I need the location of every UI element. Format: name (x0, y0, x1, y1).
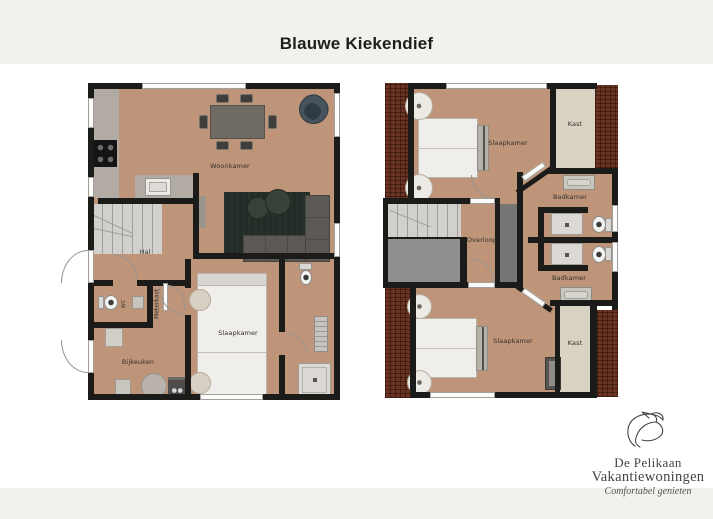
radiator (314, 316, 328, 352)
dining-chair (199, 115, 208, 129)
wall (408, 198, 470, 204)
closet-top (555, 88, 595, 168)
room-label-badkamer-bottom: Badkamer (552, 274, 586, 282)
wc-sink (132, 296, 144, 309)
bedside-stool (189, 372, 211, 394)
wall (538, 207, 588, 213)
wall (538, 265, 588, 271)
coffee-table (265, 189, 291, 215)
back-door (88, 340, 94, 373)
bedside-stool (189, 289, 211, 311)
bed-split-line (414, 348, 476, 349)
door-arc (61, 250, 88, 283)
wall (550, 300, 618, 306)
room-label-kast-bottom: Kast (568, 339, 582, 347)
toilet-tank (605, 218, 612, 232)
upper-floor-plan: Slaapkamer Kast Badkamer Overloop Badkam… (383, 83, 620, 400)
bed-headboard (198, 274, 266, 286)
wall (383, 282, 468, 288)
window (430, 392, 495, 398)
shaft (500, 204, 517, 282)
lounge-chair-seat (302, 100, 324, 122)
dining-table (210, 105, 265, 139)
room-label-wc: WC (121, 300, 127, 308)
wc-toilet (104, 295, 118, 310)
room-label-kast-top: Kast (568, 120, 582, 128)
wall (538, 243, 544, 271)
room-label-badkamer-top: Badkamer (553, 193, 587, 201)
toilet (592, 246, 606, 263)
room-label-slaapkamer-bottom: Slaapkamer (493, 337, 533, 345)
door-arc (61, 340, 88, 373)
logo-tagline: Comfortabel genieten (583, 485, 713, 498)
dining-chair (240, 141, 253, 150)
room-label-overloop: Overloop (467, 236, 497, 244)
window (446, 83, 547, 89)
window (88, 177, 94, 197)
wall (279, 259, 285, 332)
page-title: Blauwe Kiekendief (0, 34, 713, 54)
window (200, 394, 263, 400)
staircase (388, 200, 461, 237)
wall (98, 198, 195, 204)
fridge (105, 328, 123, 347)
wall (538, 207, 544, 237)
door-opening (470, 198, 495, 204)
bed-split-line (419, 148, 477, 149)
closet-bottom (560, 305, 590, 395)
wall (185, 259, 191, 288)
room-label-woonkamer: Woonkamer (210, 162, 250, 170)
wall (88, 322, 153, 328)
roof-hatch (595, 85, 618, 168)
wall (550, 83, 556, 174)
bathtub-basin (567, 179, 591, 186)
wall (193, 253, 340, 259)
entrance-door (88, 250, 94, 283)
window (88, 98, 94, 128)
room-label-slaapkamer: Slaapkamer (218, 329, 258, 337)
window (612, 242, 618, 272)
bed-headboard (476, 326, 488, 371)
dining-chair (216, 94, 229, 103)
shower (298, 363, 331, 397)
dining-chair (216, 141, 229, 150)
sofa-corner (305, 195, 330, 262)
ground-floor-plan: Woonkamer Hal WC Meterkast Bijkeuken Sla… (88, 83, 340, 400)
roof-hatch (597, 310, 618, 397)
bed (418, 118, 478, 178)
sink-basin (149, 182, 167, 192)
wall (410, 282, 416, 398)
wall (548, 168, 618, 174)
bed-headboard (477, 125, 489, 171)
shower-drain (313, 378, 317, 382)
kitchen-sink (145, 178, 171, 196)
cooktop (94, 140, 117, 167)
logo-line2: Vakantiewoningen (583, 470, 713, 485)
dining-chair (240, 94, 253, 103)
room-label-hal: Hal (140, 248, 151, 256)
wall (590, 305, 597, 395)
shower (551, 243, 583, 265)
wall (383, 198, 388, 288)
logo-line1: De Pelikaan (583, 456, 713, 470)
wall (555, 305, 560, 395)
wall (408, 83, 414, 204)
wall (137, 280, 185, 286)
wall (193, 173, 199, 259)
bathtub (563, 175, 595, 190)
dining-chair (268, 115, 277, 129)
room-label-meterkast: Meterkast (154, 289, 161, 319)
toilet (592, 216, 606, 233)
window (334, 223, 340, 257)
shower-drain (565, 223, 569, 227)
room-label-slaapkamer-top: Slaapkamer (488, 139, 528, 147)
bathroom-toilet-tank (299, 263, 312, 270)
wall (147, 280, 153, 328)
pelican-line-art-icon (622, 410, 674, 452)
window (142, 83, 246, 89)
wall (279, 355, 285, 400)
bathroom-toilet (300, 270, 312, 285)
bathtub-basin (564, 291, 588, 299)
toilet-tank (605, 247, 612, 261)
door-opening (468, 282, 495, 288)
bed (413, 318, 477, 378)
stair-void (388, 239, 461, 282)
window (334, 93, 340, 137)
room-label-bijkeuken: Bijkeuken (122, 358, 154, 366)
shower (551, 213, 583, 235)
wall (460, 237, 467, 288)
top-band (0, 0, 713, 64)
bed-blanket-line (198, 352, 266, 353)
company-logo: De Pelikaan Vakantiewoningen Comfortabel… (583, 410, 713, 498)
page: Blauwe Kiekendief (0, 0, 713, 519)
shower-drain (565, 253, 569, 257)
window (612, 205, 618, 232)
wall (185, 315, 191, 400)
